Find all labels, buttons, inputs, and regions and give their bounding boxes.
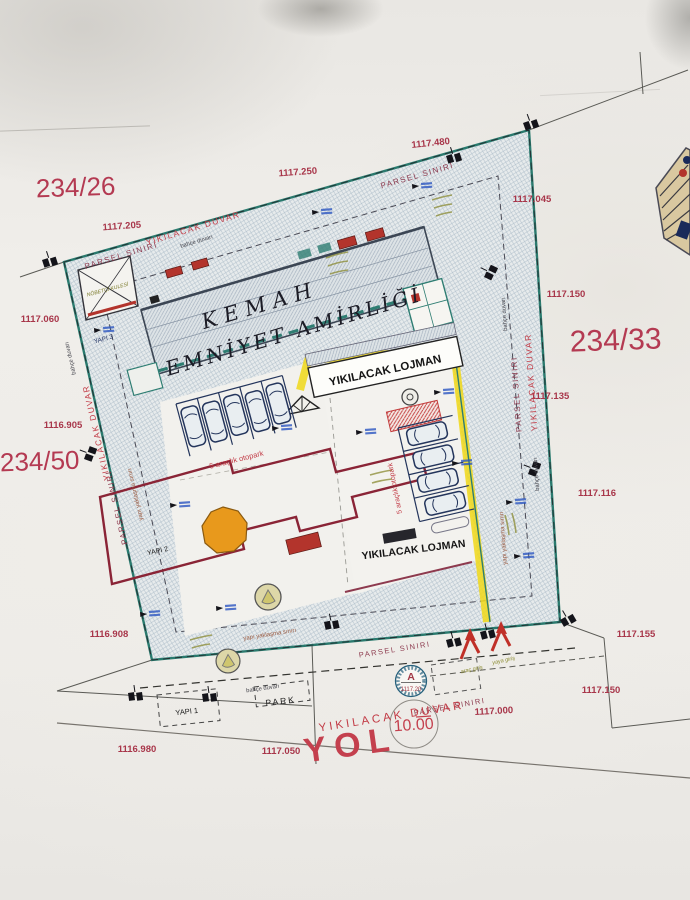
benchmark-letter: A [407, 671, 415, 683]
manhole-symbol [402, 389, 418, 405]
elevation-ne: 1117.045 [513, 194, 552, 205]
north-arrow-fragment [656, 148, 690, 255]
benchmark-elevation: 1117.20 [401, 687, 422, 693]
elevation-n1: 1117.205 [102, 220, 142, 234]
parsel-siniri-bottom-1: PARSEL SINIRI [358, 639, 431, 659]
site-plan-drawing: 234/26 234/33 234/50 1117.205 1117.250 1… [0, 0, 690, 900]
park-label: PARK [265, 694, 297, 708]
elevation-s1: 1116.980 [118, 744, 157, 755]
tree-symbol [216, 649, 240, 673]
tree-symbol [255, 584, 281, 610]
elevation-e3: 1117.116 [578, 488, 616, 499]
elevation-e5: 1117.150 [582, 685, 621, 696]
scanned-site-plan: 234/26 234/33 234/50 1117.205 1117.250 1… [0, 0, 690, 900]
road-width-value: 10.00 [393, 716, 434, 736]
parcel-number-northwest: 234/26 [35, 171, 116, 204]
parcel-number-east: 234/33 [569, 322, 662, 358]
elevation-e1: 1117.150 [547, 289, 586, 300]
yapi1-label: YAPI 1 [175, 706, 199, 717]
elevation-n3: 1117.480 [411, 136, 451, 151]
bahce-duvari-left: bahçe duvarı [64, 341, 77, 375]
elevation-s2: 1117.050 [262, 746, 301, 757]
elevation-n2: 1117.250 [278, 166, 317, 180]
road-name: YOL [301, 720, 399, 771]
elevation-e4: 1117.155 [617, 629, 656, 640]
reserved-box [431, 659, 481, 695]
elevation-w1: 1117.060 [21, 314, 60, 325]
elevation-s3: 1117.000 [474, 705, 513, 718]
elevation-w3: 1116.908 [90, 629, 129, 640]
pedestrian-entrance-label: yaya giriş [491, 656, 516, 667]
elevation-w2: 1116.905 [44, 420, 83, 431]
bahce-duvari-bottom: bahçe duvarı [246, 684, 280, 695]
parcel-number-west: 234/50 [0, 445, 80, 478]
vehicle-entrance-label: araç giriş [460, 665, 483, 676]
